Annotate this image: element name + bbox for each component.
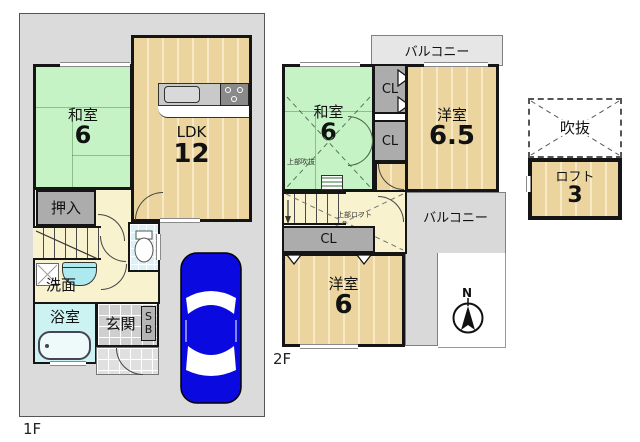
window-mark <box>300 62 360 67</box>
closet-cl-mid-2f: CL <box>373 120 407 162</box>
folding-door-icon <box>356 254 372 265</box>
room-size: 6 <box>334 292 352 318</box>
window-mark <box>300 344 358 349</box>
room-yoshitsu6-2f: 洋室 6 <box>282 253 405 347</box>
compass: N <box>450 288 486 336</box>
window-mark <box>50 361 86 366</box>
basin-line <box>63 267 96 268</box>
void-fukinuke: 吹抜 <box>528 98 622 158</box>
toilet-icon <box>133 230 155 264</box>
closet-label: CL <box>382 134 398 149</box>
stove-burner <box>237 87 243 93</box>
loft-ladder-icon <box>321 175 343 190</box>
room-size: 3 <box>567 185 582 207</box>
shoebox-label-s: S <box>145 311 152 323</box>
stairs-1f <box>33 226 101 260</box>
compass-north-icon <box>450 298 486 336</box>
shoebox: S B <box>141 306 156 341</box>
stove-burner <box>225 87 231 93</box>
balcony-right-2f-lower <box>405 253 438 346</box>
balcony-label: バルコニー <box>423 207 488 226</box>
tatami-line <box>72 107 73 187</box>
kitchen-stove <box>220 83 249 106</box>
room-loft: ロフト 3 <box>528 158 622 220</box>
folding-door-icon <box>286 254 302 265</box>
stove-burner <box>231 96 237 102</box>
floor-label-2f: 2F <box>273 350 291 368</box>
room-size: 6.5 <box>429 123 475 149</box>
window-mark <box>424 62 488 67</box>
closet-oshiire-1f: 押入 <box>36 190 96 226</box>
bathtub-drain <box>45 344 49 348</box>
tatami-line <box>72 155 130 156</box>
kitchen-sink <box>164 86 200 103</box>
closet-label: CL <box>382 82 398 97</box>
room-label: 浴室 <box>50 309 80 326</box>
room-yoshitsu65-2f: 洋室 6.5 <box>405 64 499 192</box>
shoebox-label-b: B <box>145 324 153 336</box>
room-size: 12 <box>173 141 209 167</box>
balcony-right-2f: バルコニー <box>405 192 506 254</box>
closet-cl-bottom-2f: CL <box>282 226 375 253</box>
room-label: 玄関 <box>105 316 135 333</box>
window-mark <box>156 234 161 260</box>
note-upper-void: 上部吹抜 <box>287 157 315 167</box>
stairs-diagonal <box>33 228 101 262</box>
car-icon <box>178 250 244 406</box>
kitchen-counter-front <box>158 106 249 118</box>
room-washitsu-1f: 和室 6 <box>33 64 133 190</box>
window-mark <box>160 218 200 223</box>
room-bathroom-1f: 浴室 <box>33 302 97 364</box>
bathtub <box>38 331 91 360</box>
balcony-label: バルコニー <box>405 41 470 60</box>
floor-plan: 和室 6 LDK 12 押入 <box>0 0 640 442</box>
floor-label-1f: 1F <box>23 420 41 438</box>
tatami-line <box>315 111 316 189</box>
room-ldk-1f: LDK 12 <box>131 35 252 222</box>
kitchen-counter <box>158 83 249 106</box>
closet-label: CL <box>320 232 336 247</box>
void-label: 吹抜 <box>558 120 592 137</box>
window-mark <box>60 62 130 67</box>
closet-label: 押入 <box>51 200 81 217</box>
tatami-line <box>36 107 130 108</box>
tatami-line <box>285 111 372 112</box>
room-size: 6 <box>75 123 92 147</box>
window-mark <box>526 176 531 192</box>
room-label-senmen: 洗面 <box>46 277 76 294</box>
